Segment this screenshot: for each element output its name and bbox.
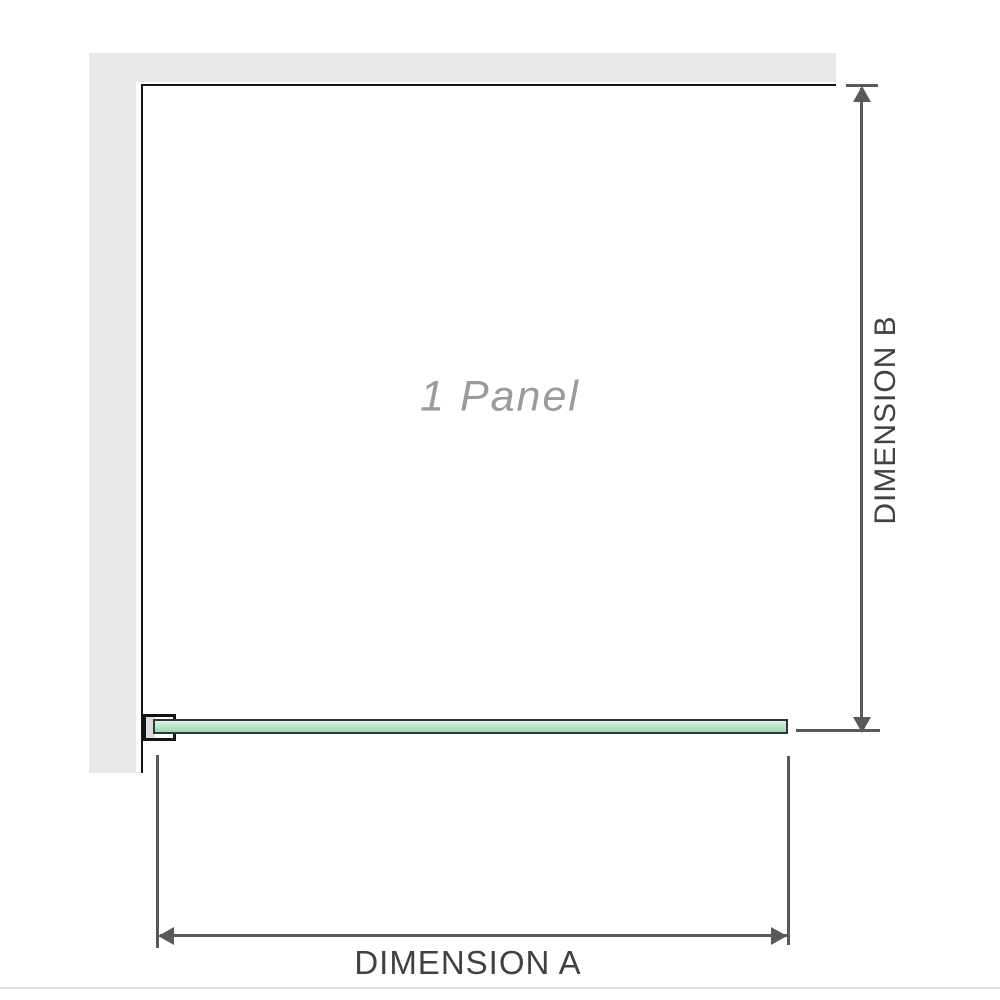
- arrow-right-icon: [771, 927, 787, 945]
- panel-count-label: 1 Panel: [420, 373, 580, 422]
- dimension-b-label: DIMENSION B: [869, 315, 903, 524]
- panel-diagram: 1 Panel DIMENSION B DIMENSION A: [0, 0, 1000, 1000]
- wall-face-line-top: [142, 84, 836, 86]
- wall-left: [89, 53, 136, 773]
- dimension-a-extension-left: [156, 755, 159, 948]
- wall-top: [89, 53, 836, 82]
- dimension-b-line: [860, 88, 863, 719]
- dimension-a-label: DIMENSION A: [354, 944, 581, 982]
- dimension-a-line: [160, 934, 787, 937]
- bottom-divider: [0, 987, 1000, 989]
- arrow-down-icon: [853, 717, 871, 733]
- dimension-a-extension-right: [787, 756, 790, 945]
- arrow-left-icon: [158, 927, 174, 945]
- glass-panel: [153, 719, 788, 734]
- arrow-up-icon: [853, 86, 871, 102]
- wall-face-line-left: [141, 84, 143, 773]
